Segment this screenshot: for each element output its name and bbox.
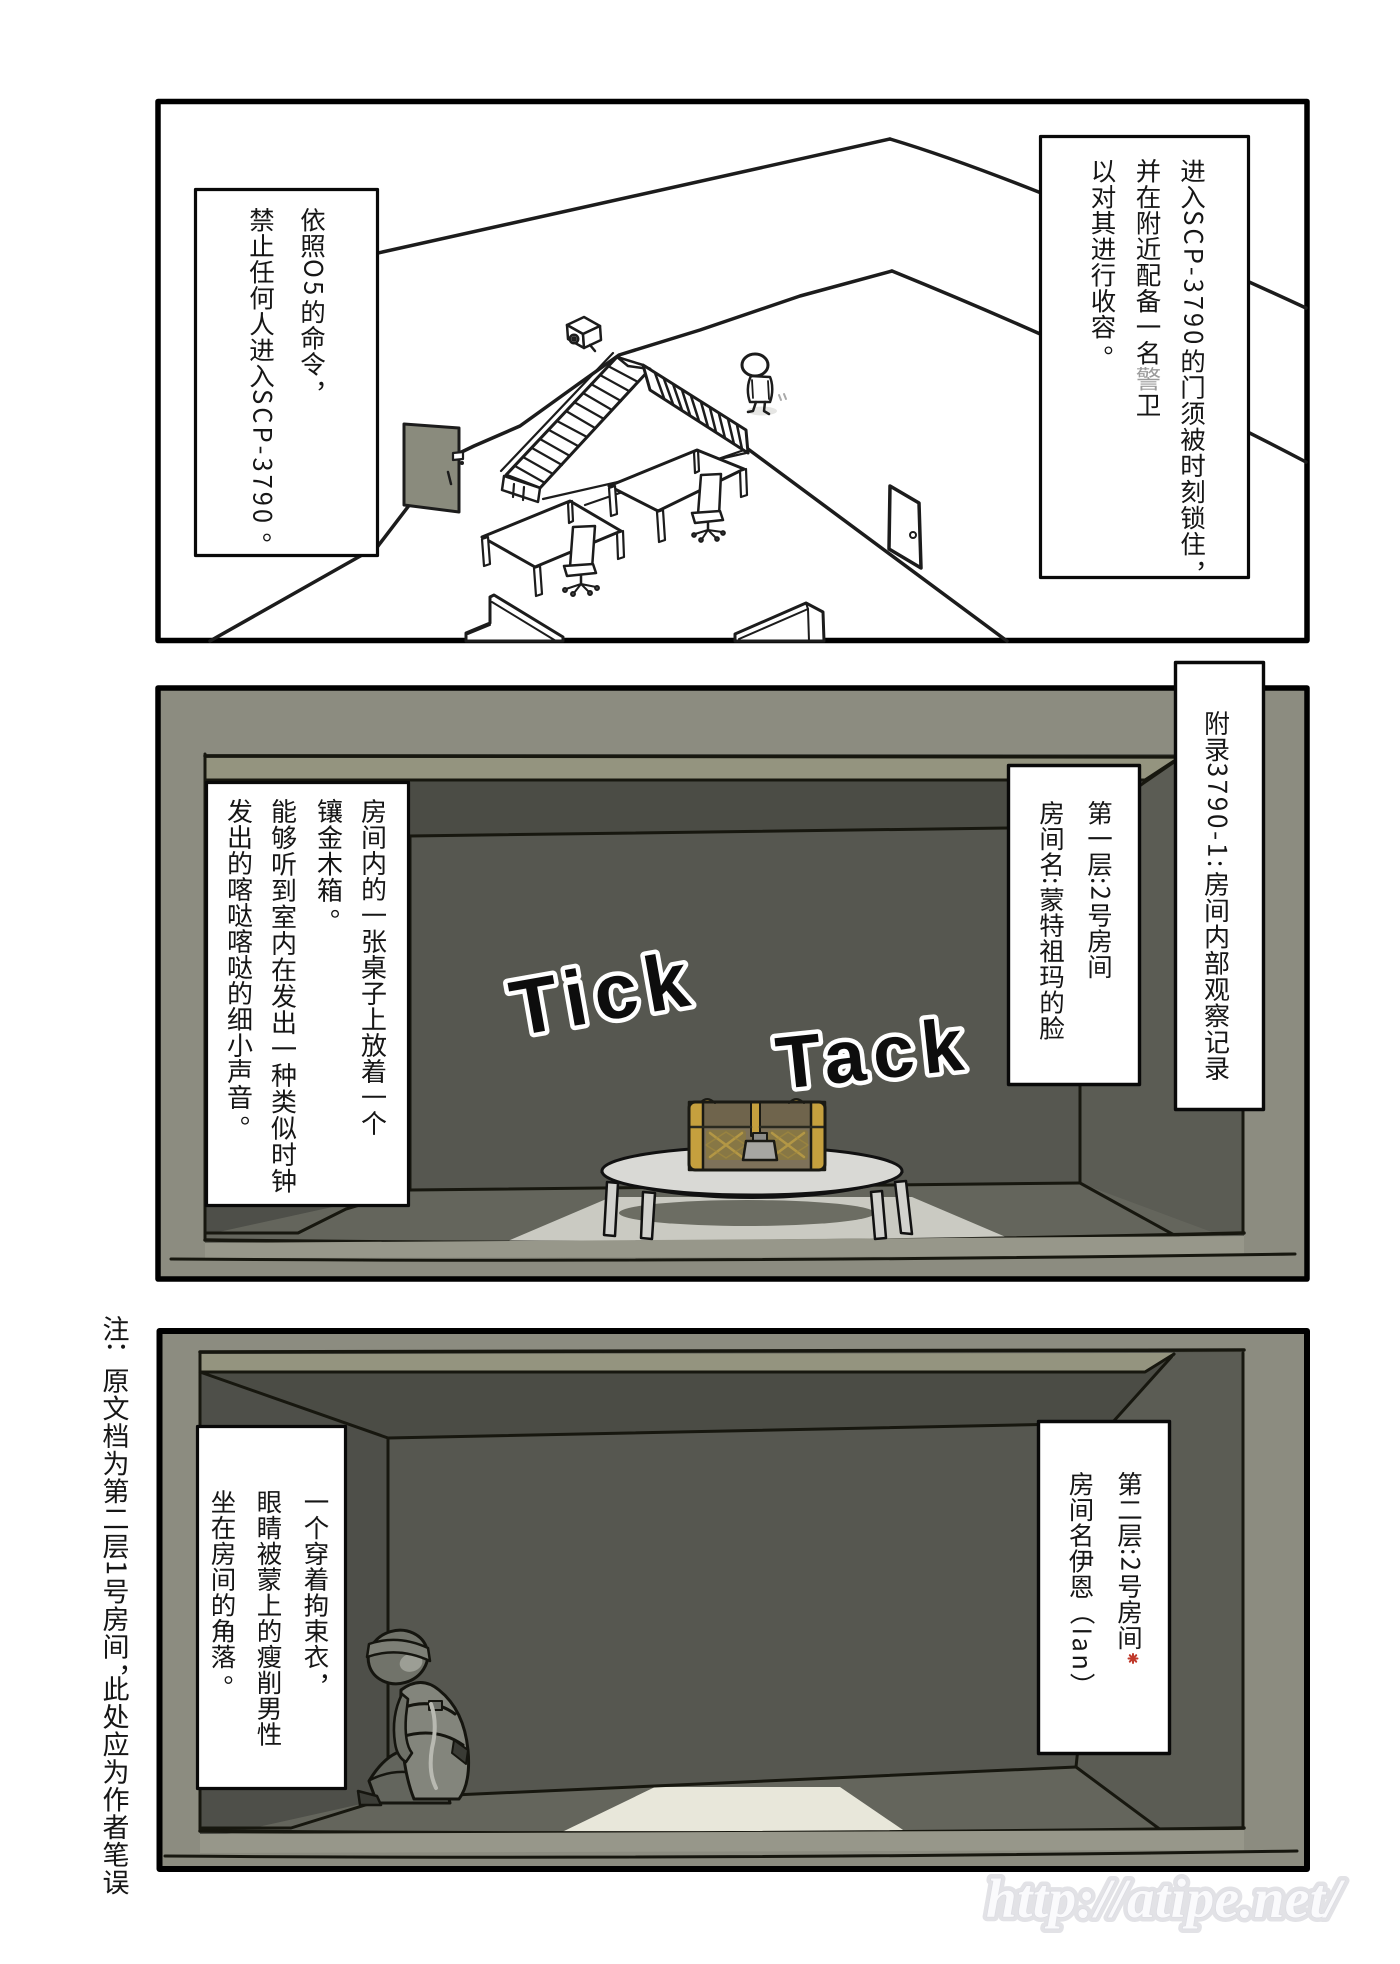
svg-text:http://atipe.net/: http://atipe.net/ <box>986 1868 1346 1929</box>
